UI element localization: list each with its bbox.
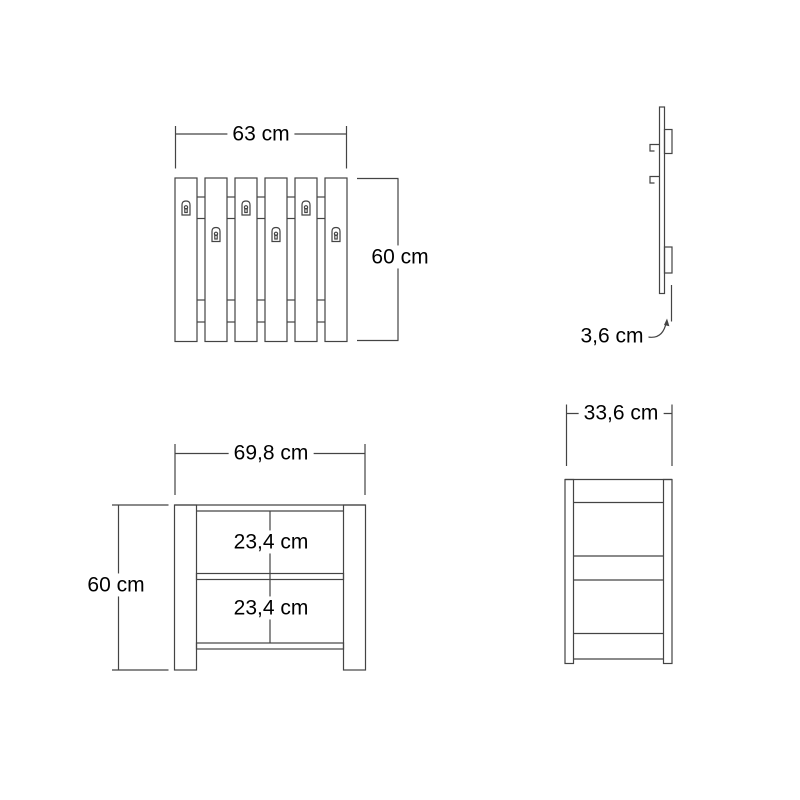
slat <box>295 178 317 342</box>
slat <box>205 178 227 342</box>
leg-right <box>344 505 366 670</box>
coat-rack-side-view <box>648 107 672 337</box>
bench-width-label: 69,8 cm <box>229 441 314 464</box>
slat <box>235 178 257 342</box>
rail-top <box>176 197 346 219</box>
leg-profile-left <box>565 480 574 664</box>
bench-depth-label: 33,6 cm <box>579 401 664 424</box>
board-profile <box>660 107 665 294</box>
slat <box>265 178 287 342</box>
bench-lower-compartment-label: 23,4 cm <box>229 596 314 619</box>
slat <box>175 178 197 342</box>
hook-side-icon <box>650 145 660 152</box>
bench-height-label: 60 cm <box>82 573 149 596</box>
leg-left <box>175 505 197 670</box>
arrowhead <box>664 319 669 327</box>
shelf-bottom <box>197 643 344 649</box>
bench-upper-compartment-label: 23,4 cm <box>229 530 314 553</box>
rail-bottom <box>176 300 346 322</box>
leg-profile-right <box>664 480 673 664</box>
coat-rack-width-label: 63 cm <box>227 122 294 145</box>
coat-rack-height-label: 60 cm <box>366 245 433 268</box>
technical-drawing: 63 cm 60 cm 3,6 cm 69,8 cm 60 cm 23,4 cm… <box>0 0 800 800</box>
slat <box>325 178 347 342</box>
hook-side-icon <box>650 177 660 184</box>
coat-rack-front-view <box>175 126 399 342</box>
bench-side-view <box>565 405 672 664</box>
rail-profile-top <box>665 130 673 154</box>
coat-rack-thickness-label: 3,6 cm <box>575 324 648 347</box>
rail-profile-bottom <box>665 247 673 273</box>
bench-front-view <box>112 444 366 670</box>
drawing-geometry <box>0 0 800 800</box>
